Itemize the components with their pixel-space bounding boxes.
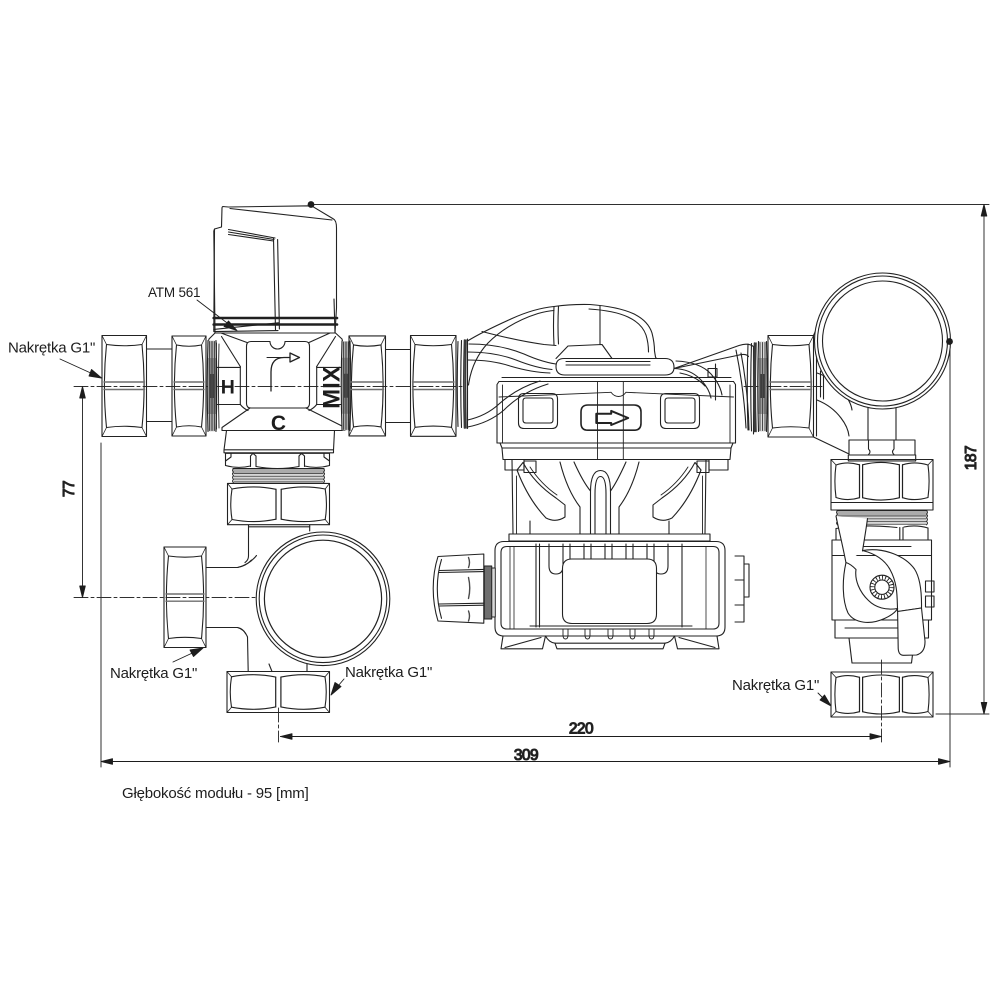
svg-text:187: 187: [963, 446, 980, 470]
svg-text:Nakrętka G1": Nakrętka G1": [110, 665, 197, 682]
svg-text:Nakrętka G1": Nakrętka G1": [345, 664, 432, 681]
svg-text:C: C: [271, 412, 286, 435]
svg-text:309: 309: [514, 747, 538, 764]
svg-text:H: H: [221, 376, 235, 398]
svg-text:Nakrętka G1": Nakrętka G1": [8, 340, 95, 357]
svg-text:Nakrętka G1": Nakrętka G1": [732, 677, 819, 694]
svg-text:77: 77: [61, 481, 78, 497]
svg-text:Głębokość modułu - 95 [mm]: Głębokość modułu - 95 [mm]: [122, 785, 309, 802]
svg-text:220: 220: [569, 721, 594, 738]
svg-text:ATM 561: ATM 561: [148, 285, 200, 300]
